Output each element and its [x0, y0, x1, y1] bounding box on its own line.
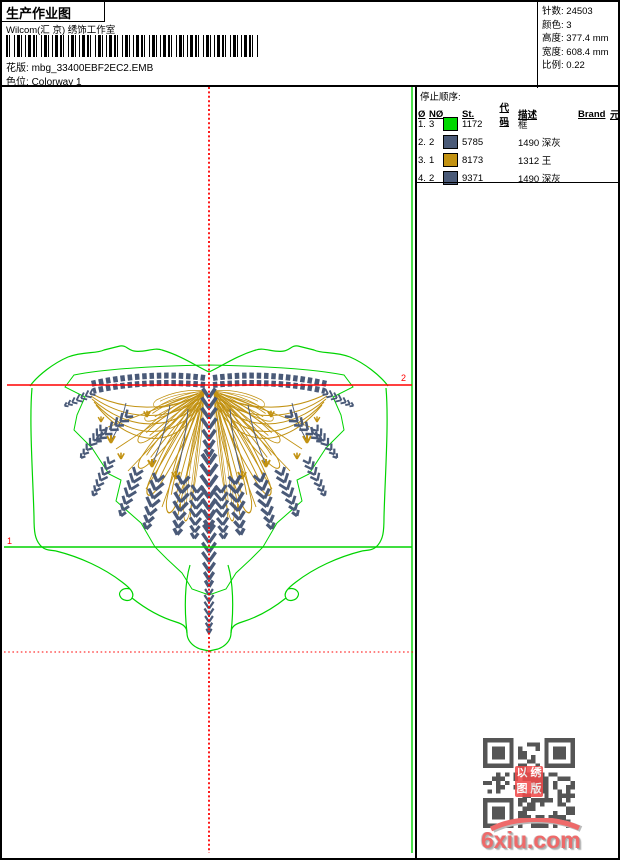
stitch-value: 1172: [462, 119, 494, 130]
table-row: 4. 2 9371 1490 深灰: [418, 169, 618, 187]
thread-color-swatch: [443, 135, 458, 149]
thread-desc: 框: [511, 117, 578, 131]
watermark-text: 6xiu.com: [481, 827, 581, 854]
table-header-row: Ø NØ St. 代码 描述 Brand 元素: [418, 100, 618, 115]
col-element: 元素: [610, 107, 620, 121]
pattern-file-line: 花版: mbg_33400EBF2EC2.EMB: [6, 59, 153, 74]
table-row: 2. 2 5785 1490 深灰: [418, 133, 618, 151]
watermark: 6xiu.com: [479, 818, 587, 854]
design-info-box: 针数: 24503 颜色: 3 高度: 377.4 mm 宽度: 608.4 m…: [537, 2, 620, 88]
needle-number: 3: [429, 119, 443, 130]
marker-start: 1: [7, 536, 12, 546]
color-count-row: 颜色: 3: [542, 19, 620, 33]
thread-color-swatch: [443, 117, 458, 131]
print-ratio: 0.22: [566, 60, 585, 71]
ratio-row: 比例: 0.22: [542, 59, 620, 73]
design-canvas: 1 2: [4, 87, 415, 858]
stitch-count-row: 针数: 24503: [542, 5, 620, 19]
needle-number: 2: [429, 137, 443, 148]
color-count: 3: [566, 20, 571, 31]
height-row: 高度: 377.4 mm: [542, 32, 620, 46]
thread-desc: 1312 王: [511, 153, 578, 167]
design-drawing: 1 2: [4, 87, 415, 858]
stop-sequence-table: Ø NØ St. 代码 描述 Brand 元素 1. 3 1172 5 框 2.: [418, 100, 618, 187]
studio-name: Wilcom(汇 京) 绣饰工作室: [6, 22, 115, 36]
col-brand: Brand: [578, 109, 610, 120]
table-row: 3. 1 8173 1312 王: [418, 151, 618, 169]
design-height: 377.4 mm: [566, 33, 608, 44]
stitch-value: 8173: [462, 155, 494, 166]
width-row: 宽度: 608.4 mm: [542, 46, 620, 60]
stitch-value: 5785: [462, 137, 494, 148]
design-width: 608.4 mm: [566, 47, 608, 58]
red-stamp: 以 绣 图 版: [515, 766, 543, 797]
thread-color-swatch: [443, 153, 458, 167]
stop-sequence-panel: 停止顺序: Ø NØ St. 代码 描述 Brand 元素 1. 3 1172 …: [415, 87, 620, 858]
table-bottom-border: [417, 182, 620, 183]
production-worksheet: 生产作业图 Wilcom(汇 京) 绣饰工作室 花版: mbg_33400EBF…: [0, 0, 620, 860]
thread-desc: 1490 深灰: [511, 135, 578, 149]
stitch-count: 24503: [566, 6, 592, 17]
title-cell: 生产作业图: [2, 2, 105, 22]
barcode: [6, 35, 258, 57]
qr-code: 以 绣 图 版: [483, 738, 575, 828]
marker-end: 2: [401, 373, 406, 383]
needle-number: 1: [429, 155, 443, 166]
page-title: 生产作业图: [6, 3, 100, 22]
thread-code: 5: [494, 119, 511, 130]
